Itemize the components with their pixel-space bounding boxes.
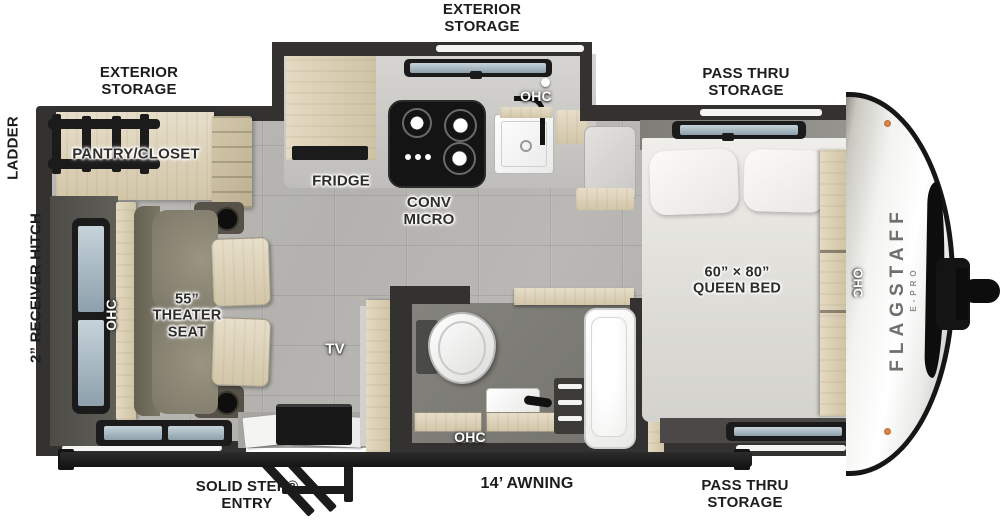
towel-bar	[558, 384, 582, 389]
wardrobe-cabinet	[212, 116, 252, 208]
ladder-rung	[112, 116, 121, 172]
label-pass-thru-top: PASS THRU STORAGE	[685, 66, 807, 100]
label-ladder: LADDER	[6, 116, 23, 180]
stove-burner	[443, 142, 476, 175]
bath-door-divider	[366, 300, 392, 452]
label-ohc-bath: OHC	[454, 430, 486, 446]
awning-bar	[60, 452, 752, 467]
tongue-jack-handle	[962, 279, 1000, 303]
stove-cooktop	[388, 100, 486, 188]
toilet-lid-ring	[438, 321, 486, 375]
label-ohc-rear: OHC	[104, 299, 120, 331]
brand-decal: FLAGSTAFF E-PRO	[888, 206, 918, 372]
floorplan-canvas: FLAGSTAFF E-PRO EXTERIOR STORAGE EXTERIO…	[0, 0, 1000, 520]
bed-window-bottom-glass	[734, 427, 842, 436]
clearance-light	[884, 428, 891, 435]
shower	[584, 308, 636, 449]
kitchen-window	[404, 59, 552, 77]
towel-bar	[558, 400, 582, 405]
pillow	[743, 149, 827, 213]
soap-dispenser	[541, 78, 550, 87]
label-pass-thru-bottom: PASS THRU STORAGE	[684, 478, 806, 512]
bed-window-top-glass	[680, 125, 798, 135]
bathroom-wall-left	[390, 286, 412, 455]
pillow	[649, 148, 739, 215]
label-ohc-kitchen: OHC	[520, 89, 552, 105]
pass-thru-door-bottom	[736, 445, 846, 451]
bathroom-counter-top	[514, 288, 634, 305]
stove-knobs	[405, 154, 439, 162]
door-side-window-glass	[104, 426, 162, 440]
bed-window-bottom	[726, 422, 850, 441]
label-tv: TV	[325, 342, 345, 359]
rear-window-glass	[78, 226, 104, 312]
label-pantry-closet: PANTRY/CLOSET	[72, 147, 200, 164]
label-queen-bed: 60” × 80” QUEEN BED	[678, 265, 796, 298]
fridge-vent	[292, 146, 368, 160]
label-fridge: FRIDGE	[312, 174, 370, 191]
label-solid-step-entry: SOLID STEP® ENTRY	[177, 479, 317, 513]
label-awning: 14’ AWNING	[481, 475, 574, 493]
towel-bar	[558, 416, 582, 421]
door-side-window-glass	[168, 426, 224, 440]
brand-name: FLAGSTAFF	[888, 206, 907, 372]
rear-window-glass	[78, 320, 104, 406]
bed-window-top	[672, 121, 806, 139]
bathroom-wall-top	[390, 286, 470, 304]
ladder-rung	[82, 116, 91, 172]
exterior-storage-door	[436, 45, 584, 52]
label-exterior-storage-kitchen: EXTERIOR STORAGE	[426, 2, 538, 36]
window-latch	[722, 133, 734, 141]
shower-pan	[591, 317, 627, 437]
fridge-cabinet	[286, 54, 376, 160]
cup-holder	[215, 207, 239, 231]
entry-step-box	[276, 404, 352, 445]
window-latch	[470, 71, 482, 79]
sink-shelf	[500, 107, 552, 118]
stove-burner	[402, 108, 432, 138]
cabinet-seam	[820, 310, 848, 313]
label-receiver-hitch: 2” RECEIVER HITCH	[29, 213, 46, 363]
bed-overhead-cabinet	[820, 150, 848, 416]
ladder-rung	[140, 114, 149, 174]
towel-rack-panel	[554, 378, 586, 434]
label-exterior-storage-rear: EXTERIOR STORAGE	[83, 65, 195, 99]
door-side-window	[96, 420, 232, 446]
bath-shelf	[486, 412, 556, 432]
label-theater-seat: 55” THEATER SEAT	[141, 291, 233, 340]
stove-burner	[444, 109, 477, 142]
cup-holder	[215, 391, 239, 415]
nightstand-base	[576, 188, 634, 210]
clearance-light	[884, 120, 891, 127]
cabinet-seam	[820, 250, 848, 253]
brand-series: E-PRO	[910, 206, 918, 372]
ladder-rung	[52, 114, 61, 174]
step-leg	[344, 466, 353, 502]
label-conv-micro: CONV MICRO	[397, 195, 461, 229]
label-ohc-bed: OHC	[850, 268, 865, 298]
pass-thru-door-top	[700, 109, 822, 116]
